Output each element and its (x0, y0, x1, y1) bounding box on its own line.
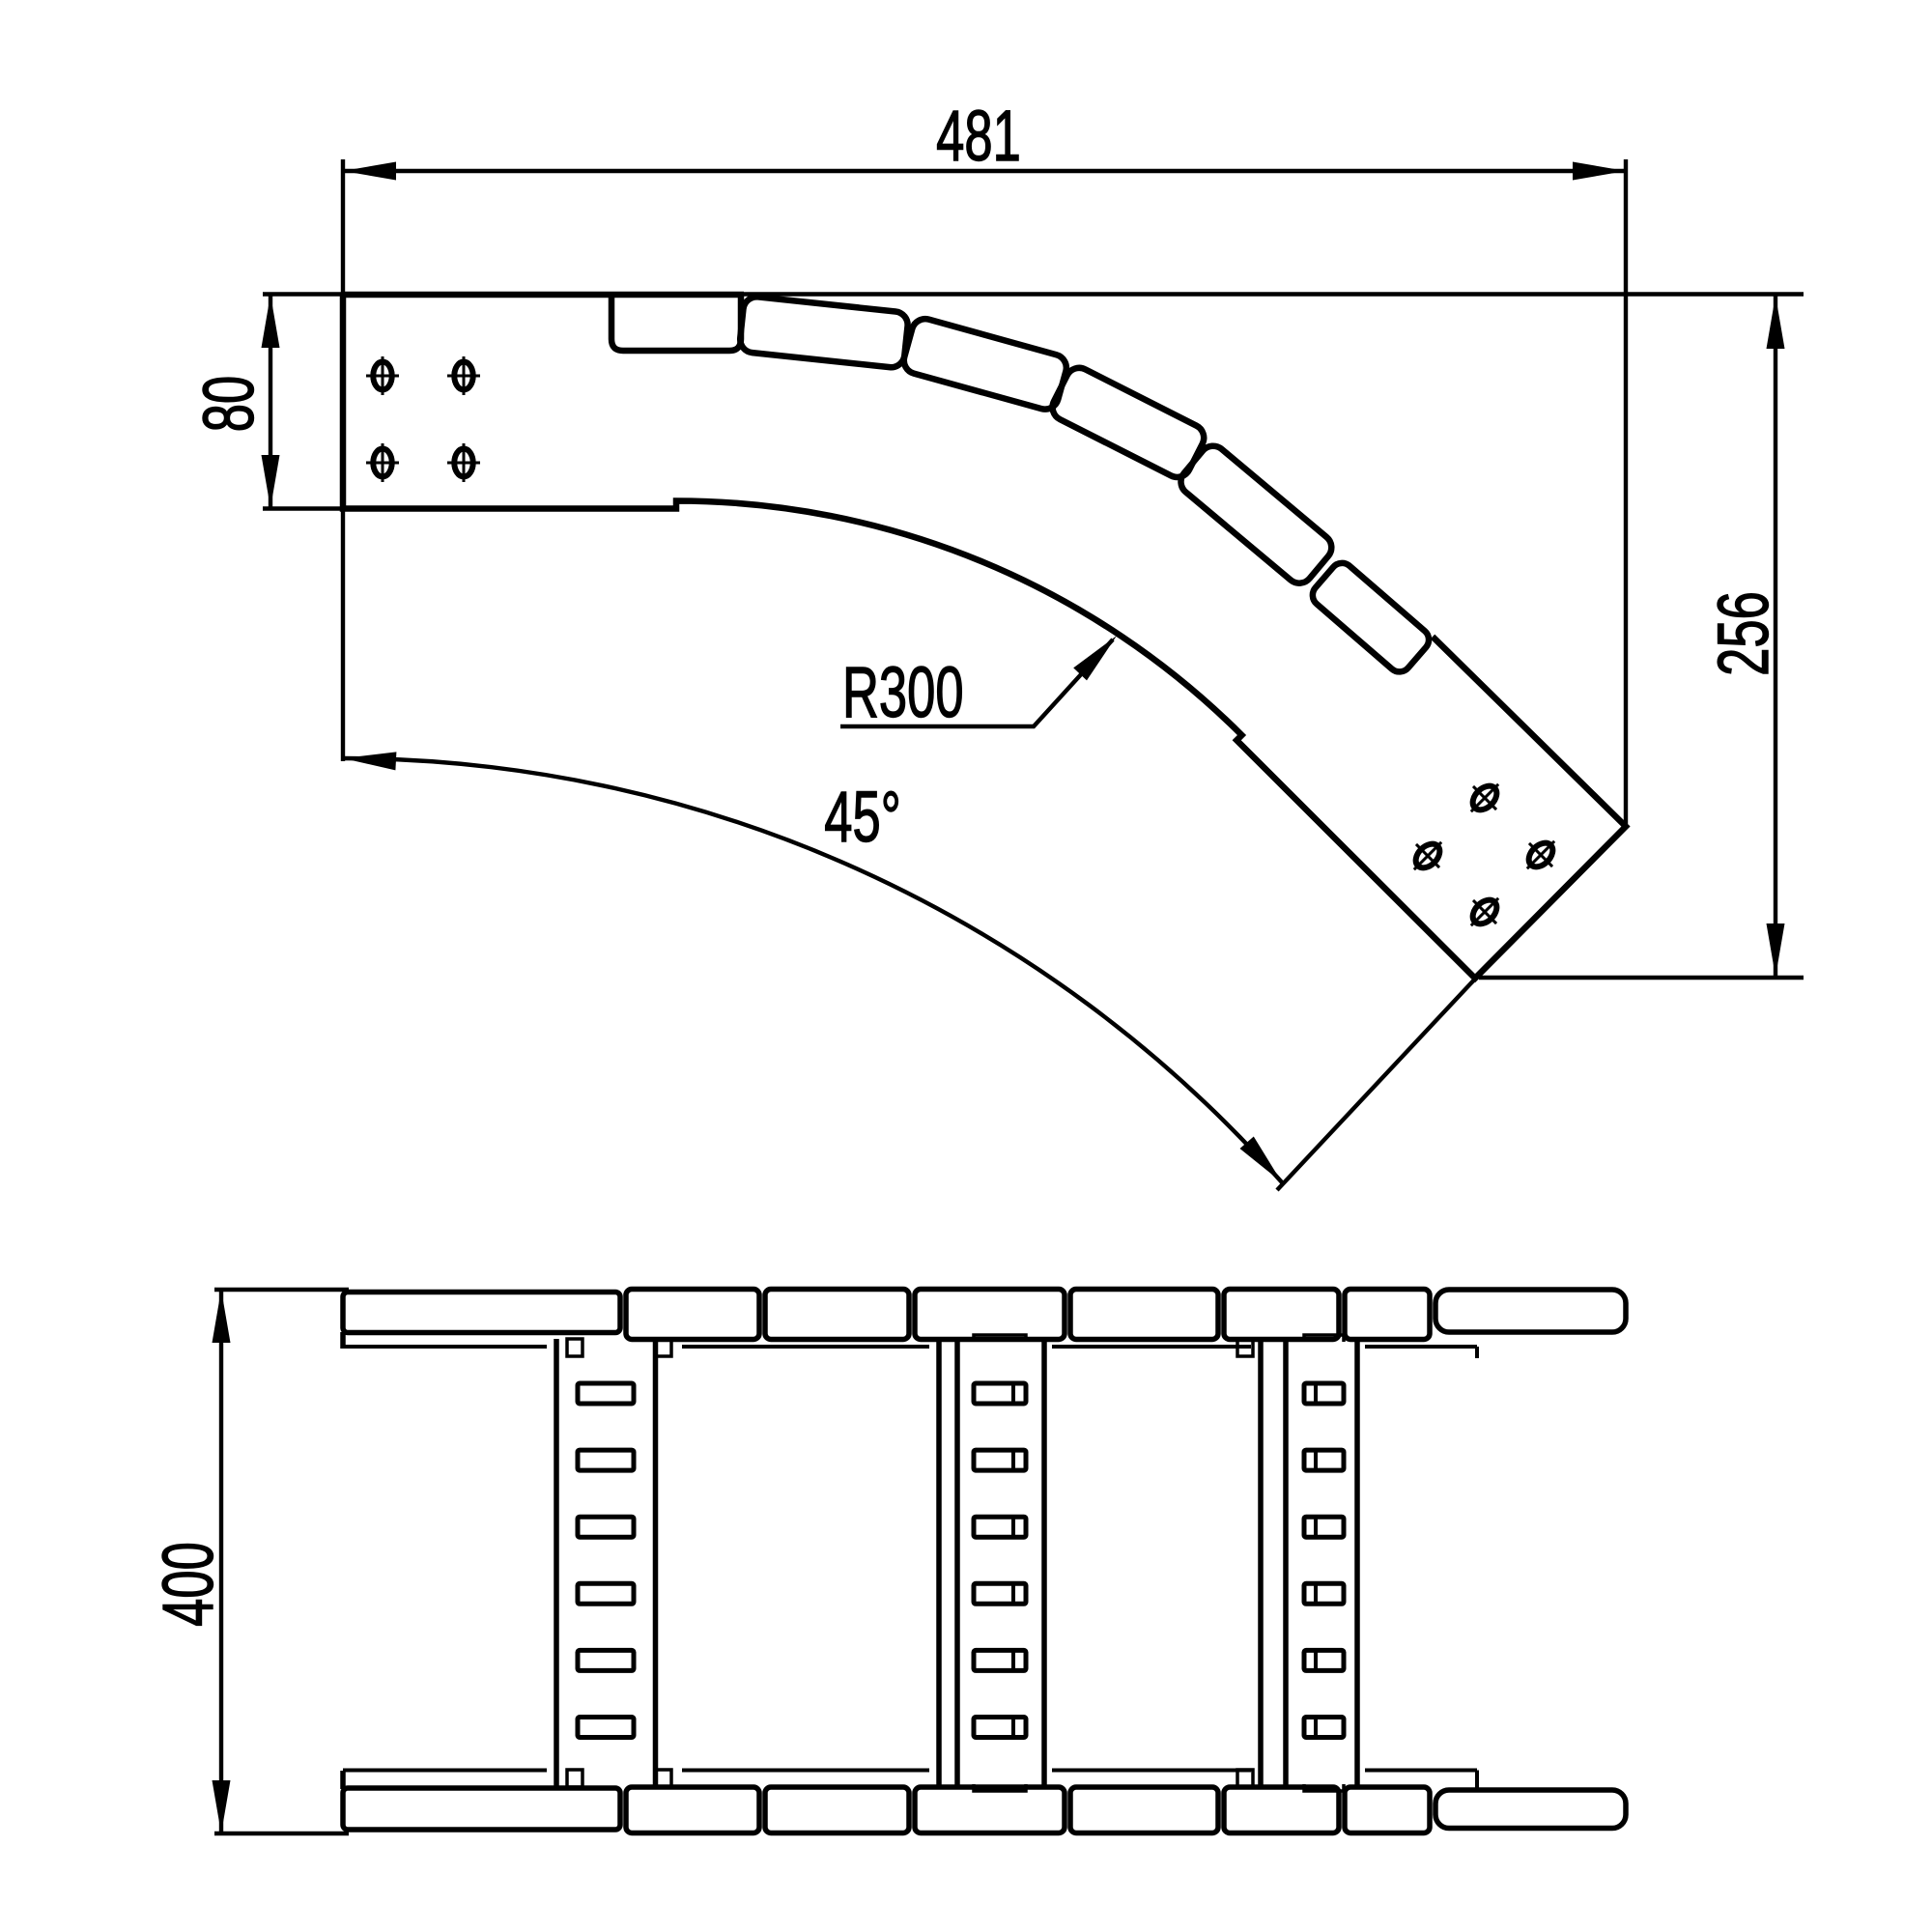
svg-text:400: 400 (148, 1542, 228, 1627)
svg-text:256: 256 (1703, 591, 1783, 676)
svg-text:80: 80 (188, 376, 269, 432)
svg-text:45°: 45° (824, 777, 900, 857)
svg-text:R300: R300 (842, 652, 964, 732)
svg-text:481: 481 (936, 96, 1021, 176)
